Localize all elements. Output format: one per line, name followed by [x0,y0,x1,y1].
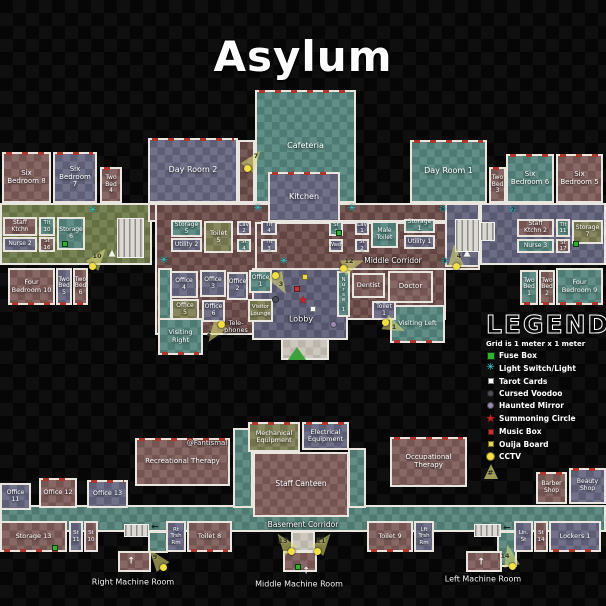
room-label: Nurse 1 [340,277,346,312]
fuse-box-icon [52,545,58,551]
room-label: Nurse 2 [8,241,31,248]
room-label: Day Room 2 [169,166,218,175]
room-two-bed-4: Two Bed 4 [100,167,122,203]
room-two-bed-1: Two Bed 1 [520,270,538,305]
cctv-number: 1 [392,323,397,331]
legend-item-label: Haunted Mirror [499,401,564,410]
cone-number-symbol: # [488,469,494,477]
legend-item-label: Cursed Voodoo [499,389,562,398]
room-st-17: St 17 [556,239,570,253]
fuse-box-icon [486,352,495,360]
music-box-icon [294,286,300,292]
room-visiting-right: Visiting Right [158,318,203,355]
room-day-room-2: Day Room 2 [148,138,238,203]
room-label: Two Bed 1 [523,278,535,298]
room-label: Storage 6 [59,227,82,240]
room-label: Occupational Therapy [393,454,464,469]
room-tlt-10: Tlt 10 [39,217,55,236]
room-label: Lav 2 [239,222,249,234]
haunted-mirror-icon [330,321,337,328]
cctv-number: 4 [457,252,462,260]
room-label: Mechanical Equipment [251,430,297,444]
light-number: 7 [511,209,514,214]
room-staff-canteen: Staff Canteen [253,452,349,517]
tarot-cards-icon [486,378,495,384]
room-label: Six Bedroom 6 [509,171,551,186]
room-label: Visiting Right [161,329,200,343]
room-lin-st: Lin. St [514,521,533,552]
cursed-voodoo-icon [486,390,495,397]
room-staff-ktchn: Staff Ktchn [3,217,37,236]
light-icon: ✳ [486,363,495,373]
room-label: Electrical Equipment [305,429,346,443]
room-visiting-right-hall [158,268,172,321]
cctv-number: 9 [153,553,158,561]
room-two-bed-5: Two Bed 5 [56,268,72,305]
cctv-number: 2 [207,329,212,337]
room-dentist: Dentist [352,273,385,298]
room-office-4: Office 4 [170,271,198,298]
light-icon: ✳8 [441,257,449,267]
direction-arrow-icon: ↑ [477,559,485,568]
cctv-icon [382,319,389,326]
room-label: Office 5 [174,303,196,316]
room-label: Male Toilet [374,228,395,241]
room-wash: Wash [329,239,343,252]
room-label: Six Bedroom 5 [559,171,600,186]
room-male-toilet: Male Toilet [371,221,398,248]
room-nurse-3: Nurse 3 [517,239,554,253]
legend-items: Fuse Box✳Light Switch/LightTarot CardsCu… [486,351,605,479]
legend-item-label: Ouija Board [499,440,549,449]
legend-item-label: Music Box [499,427,542,436]
cctv-icon [486,452,495,461]
room-label: Lockers 1 [560,533,591,540]
summoning-circle-icon: ★ [298,295,308,306]
room-label: Two Bed 6 [75,277,87,297]
cctv-icon [288,548,295,555]
room-label: Storage 5 [174,222,199,235]
middle-machine-label: Middle Machine Room [255,581,343,590]
legend-item-cctv: CCTV [486,452,605,461]
cctv-cone-icon: # [486,464,495,479]
room-label: Four Bedroom 9 [559,279,600,293]
room-label: St 16 [42,238,52,250]
legend-subtitle: Grid is 1 meter x 1 meter [486,340,605,348]
light-icon: ✳ [280,257,288,267]
room-nurse-1: Nurse 1 [337,271,350,317]
room-label: St 17 [559,240,567,252]
room-label: Two Bed 3 [492,175,504,195]
room-storage-5: Storage 5 [171,220,202,237]
ouija-board-icon [302,274,308,280]
room-label: Office 1 [252,275,270,288]
room-label: Tlt 4 [264,222,274,234]
entrance-arrow-icon [288,347,306,360]
room-visitor-lounge: Visitor Lounge [248,299,273,322]
direction-arrow-icon: ↑ [302,568,310,577]
room-electrical-equipment: Electrical Equipment [302,422,349,450]
legend-item-label: CCTV [499,452,521,461]
legend-item-label: Tarot Cards [499,377,547,386]
lobby-label: Lobby [289,316,313,325]
room-six-bedroom-7: Six Bedroom 7 [53,152,97,203]
room-label: Recreational Therapy [145,458,220,466]
room-label: Six Bedroom 8 [5,170,48,185]
room-label: Office 13 [93,490,122,497]
haunted-mirror-glyph [487,402,494,409]
legend-item-cctv-cone: # [486,464,605,479]
tarot-cards-glyph [488,378,494,384]
legend-item-tarot-cards: Tarot Cards [486,377,605,386]
tarot-cards-icon [310,306,316,312]
room-mechanical-equipment: Mechanical Equipment [248,422,300,452]
cctv-number: 7 [254,152,259,160]
cctv-number: 10 [92,252,101,260]
room-office-2: Office 2 [227,272,248,300]
legend-item-fuse-box: Fuse Box [486,351,605,360]
room-label: Utility 1 [408,239,431,246]
room-label: Four Bedroom 10 [11,279,52,293]
cctv-glyph [486,452,495,461]
fuse-box-icon [62,241,68,247]
cctv-number: 11 [316,537,325,545]
room-office-3: Office 3 [200,270,226,297]
legend-item-label: Fuse Box [499,351,537,360]
direction-arrow-icon: ▲ [464,250,471,259]
room-label: St 2 [358,239,366,251]
haunted-mirror-icon [486,402,495,409]
room-label: Cafeteria [287,142,324,151]
room-label: St 11 [72,530,80,542]
room-nurse-2: Nurse 2 [3,237,37,252]
room-label: Office 2 [229,279,247,292]
room-doctor: Doctor [388,271,433,303]
room-toilet-8: Toilet 8 [187,521,232,552]
room-label: Lav 1 [357,222,367,234]
map-title: Asylum [0,32,606,81]
cctv-icon [272,272,279,279]
room-label: St 4 [240,239,248,251]
room-kitchen: Kitchen [268,172,340,222]
fuse-box-icon [573,241,579,247]
legend-item-light: ✳Light Switch/Light [486,363,605,373]
room-office-12: Office 12 [39,478,77,508]
room-tlt-3: Tlt 3 [261,239,277,252]
fuse-box-icon [295,564,301,570]
light-number: 8 [443,260,446,265]
room-st-10: St 10 [84,521,98,552]
light-icon: ✳6 [439,205,447,215]
room-label: Toilet 8 [198,533,221,540]
room-storage-1: Storage 1 [404,219,435,233]
room-office-13: Office 13 [87,480,128,508]
light-number: 6 [441,208,444,213]
room-label: St 14 [537,530,545,542]
room-label: Staff Canteen [275,480,326,488]
room-lockers-1: Lockers 1 [549,521,601,552]
room-label: Barber Shop [539,481,564,494]
legend-item-cursed-voodoo: Cursed Voodoo [486,389,605,398]
room-tlt-11: Tlt 11 [556,219,570,237]
direction-arrow-icon: ← [151,524,159,533]
room-label: Lft Trsh Rm [417,527,431,545]
room-label: Storage 1 [407,219,432,232]
room-label: Nurse 3 [524,243,547,250]
cctv-cone-glyph: # [484,464,498,479]
cctv-number: 13 [278,537,287,545]
room-label: Office 3 [203,277,223,290]
room-label: Wash [329,242,344,248]
room-four-bedroom-10: Four Bedroom 10 [8,268,55,305]
fuse-box-icon [336,230,342,236]
room-label: Tlt 3 [264,239,274,251]
legend-title: LEGEND [486,312,605,337]
room-day-room-1: Day Room 1 [410,140,487,203]
right-machine-label: Right Machine Room [92,579,174,588]
ouija-board-glyph [488,441,494,447]
cctv-icon [244,165,251,172]
room-two-bed-3: Two Bed 3 [489,167,506,203]
cctv-icon [340,265,347,272]
room-label: Doctor [399,283,422,291]
room-label: Two Bed 2 [541,278,553,298]
room-st-2: St 2 [355,239,369,252]
light-icon: ✳ [89,206,97,216]
room-st-16: St 16 [39,237,55,252]
telephones-label: Tele- phones [224,320,248,334]
room-label: Office 12 [43,489,72,496]
ouija-board-icon [486,441,495,447]
room-label: Staff Ktchn [6,220,34,233]
summoning-circle-icon: ★ [486,413,495,424]
room-st-11: St 11 [69,521,83,552]
room-label: Staff Ktchn 2 [520,221,551,234]
room-six-bedroom-8: Six Bedroom 8 [2,152,51,203]
room-two-bed-2: Two Bed 2 [539,270,555,305]
room-label: Office 6 [205,304,223,317]
zone-middle-machine-vestibule [291,531,315,552]
cctv-icon [89,263,96,270]
room-label: Visitor Lounge [250,304,270,316]
cctv-icon [453,263,460,270]
basement-corridor-label: Basement Corridor [268,521,339,529]
direction-arrow-icon: ▲ [109,250,116,259]
room-toilet-5: Toilet 5 [204,221,233,253]
summoning-circle-glyph: ★ [486,413,496,424]
room-label: Office 4 [173,278,195,291]
room-label: Dentist [357,282,380,289]
room-label: Rt Trsh Rm [169,527,183,545]
watermark: @Fantismal [187,440,228,448]
light-icon: ✳ [348,204,356,214]
room-st-14: St 14 [534,521,548,552]
cursed-voodoo-icon [272,296,279,303]
room-label: Two Bed 5 [58,277,70,297]
light-glyph: ✳ [486,363,494,373]
legend-item-music-box: Music Box [486,427,605,436]
stairs-icon [124,524,149,537]
room-two-bed-6: Two Bed 6 [73,268,88,305]
room-rt-trsh-rm: Rt Trsh Rm [166,521,186,552]
stairs-icon [480,222,495,241]
fuse-box-glyph [487,352,495,360]
room-six-bedroom-6: Six Bedroom 6 [506,154,554,203]
direction-arrow-icon: ↑ [127,558,135,567]
room-occupational-therapy: Occupational Therapy [390,437,467,487]
legend-item-label: Summoning Circle [499,414,576,423]
room-label: Toilet 9 [378,533,401,540]
room-label: Beauty Shop [572,479,603,492]
room-label: Utility 2 [175,242,198,249]
room-lft-trsh-rm: Lft Trsh Rm [414,521,434,552]
room-label: St 10 [87,530,95,542]
room-utility-1: Utility 1 [404,235,435,249]
legend-item-label: Light Switch/Light [499,364,576,373]
room-label: Tlt 11 [559,222,567,234]
room-lav-2: Lav 2 [237,221,251,235]
room-four-bedroom-9: Four Bedroom 9 [556,268,603,305]
asylum-map: Asylum LEGEND Grid is 1 meter x 1 meter … [0,0,606,606]
zone-basement-right-v [348,448,366,508]
cctv-number: 12 [344,257,353,265]
room-utility-2: Utility 2 [171,238,202,252]
light-icon: ✳ [160,256,168,266]
room-label: Kitchen [289,193,319,202]
room-label: Two Bed 4 [103,175,119,195]
cctv-number: 3 [279,280,284,288]
room-six-bedroom-5: Six Bedroom 5 [556,154,603,203]
middle-corridor-label: Middle Corridor [364,257,422,265]
legend: LEGEND Grid is 1 meter x 1 meter Fuse Bo… [486,312,605,479]
left-machine-label: Left Machine Room [445,576,521,585]
cctv-icon [509,563,516,570]
stairs-icon [117,218,144,258]
direction-arrow-icon: ← [503,525,511,534]
cursed-voodoo-glyph [487,390,494,397]
legend-item-haunted-mirror: Haunted Mirror [486,401,605,410]
room-label: Storage 13 [16,533,52,540]
stairs-icon [474,524,501,537]
legend-item-summoning-circle: ★Summoning Circle [486,413,605,424]
light-icon: ✳ [254,204,262,214]
music-box-icon [486,429,495,435]
room-tlt-4: Tlt 4 [261,221,277,235]
room-label: Six Bedroom 7 [56,166,94,189]
room-label: Tlt 10 [42,220,52,232]
light-icon: ✳7 [509,206,517,216]
room-label: Office 11 [3,490,28,503]
room-staff-ktchn-2: Staff Ktchn 2 [517,219,554,237]
room-label: Toilet 5 [207,230,230,244]
room-label: Day Room 1 [424,167,473,176]
room-label: Lin. St [517,530,530,542]
room-label: Storage 7 [575,225,600,238]
music-box-glyph [488,429,494,435]
cctv-number: 14 [500,552,509,560]
room-toilet-9: Toilet 9 [367,521,413,552]
room-office-11: Office 11 [0,483,31,510]
cctv-icon [160,564,167,571]
cctv-icon [314,548,321,555]
room-lav-1: Lav 1 [355,221,369,235]
legend-item-ouija-board: Ouija Board [486,440,605,449]
room-st-4: St 4 [237,239,251,252]
